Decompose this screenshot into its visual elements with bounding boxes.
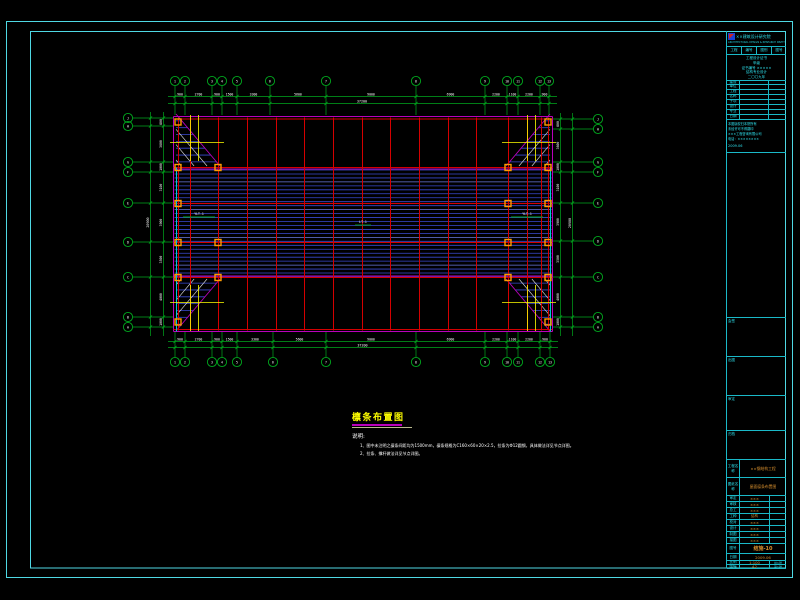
svg-text:5600: 5600 — [296, 337, 304, 341]
svg-text:900: 900 — [177, 337, 183, 341]
info-value — [740, 115, 769, 119]
svg-text:2200: 2200 — [525, 337, 533, 341]
svg-text:G: G — [127, 160, 129, 164]
personnel-extra — [769, 520, 786, 525]
svg-text:3: 3 — [211, 360, 213, 364]
section-label-1: 出图 — [728, 358, 735, 363]
size-row: 图幅A2第1张 — [727, 565, 786, 569]
svg-text:C: C — [127, 275, 129, 279]
svg-text:3500: 3500 — [556, 255, 560, 263]
section-divider — [727, 356, 786, 357]
svg-text:C: C — [597, 275, 599, 279]
personnel-value: ××× — [740, 532, 769, 537]
company-name: ××建筑设计研究院 — [736, 34, 771, 40]
svg-text:H: H — [597, 127, 599, 131]
info-label: 建设 — [727, 81, 740, 84]
info-label: 单位 — [727, 85, 740, 89]
titleblock-header: ××建筑设计研究院 — [728, 33, 771, 40]
svg-text:3100: 3100 — [556, 184, 560, 192]
date-row: 日期2009.06 — [727, 554, 786, 561]
company-logo-icon — [728, 33, 735, 40]
svg-text:G: G — [597, 160, 599, 164]
svg-text:6900: 6900 — [447, 92, 455, 96]
section-divider — [727, 430, 786, 431]
personnel-label: 审核 — [727, 502, 740, 507]
svg-text:20900: 20900 — [146, 217, 150, 227]
svg-text:10: 10 — [505, 79, 509, 83]
svg-text:900: 900 — [214, 337, 220, 341]
svg-text:5: 5 — [236, 79, 238, 83]
svg-text:YLT-1: YLT-1 — [194, 212, 204, 216]
info-label: 子项 — [727, 100, 740, 104]
drawing-number-row: 图号结施-10 — [727, 544, 786, 554]
svg-text:6900: 6900 — [447, 337, 455, 341]
svg-text:1000: 1000 — [556, 163, 560, 171]
info-extra — [769, 100, 786, 104]
personnel-label: 校对 — [727, 520, 740, 525]
svg-text:4000: 4000 — [556, 293, 560, 301]
personnel-extra — [769, 532, 786, 537]
svg-text:1000: 1000 — [556, 318, 560, 326]
row-value: 1:100 — [740, 561, 769, 564]
info-value — [740, 90, 769, 94]
svg-text:LT-1: LT-1 — [359, 220, 367, 224]
personnel-extra — [769, 526, 786, 531]
svg-text:2700: 2700 — [195, 337, 203, 341]
cad-sheet: { "colors": { "background": "#000000", "… — [0, 0, 800, 600]
row-value: 2009.06 — [740, 554, 786, 560]
svg-text:F: F — [127, 170, 129, 174]
info-label: 日期 — [727, 115, 740, 119]
svg-text:900: 900 — [214, 92, 220, 96]
column-grid-red — [174, 118, 553, 331]
section-divider — [727, 317, 786, 318]
svg-text:2200: 2200 — [525, 92, 533, 96]
row-value: 结施-10 — [740, 544, 786, 553]
info-row-7: 日期 — [727, 115, 786, 120]
svg-text:13: 13 — [547, 79, 551, 83]
svg-text:D: D — [127, 240, 129, 244]
titleblock-bottom-table: 工程名称××钢结构工程图纸名称屋面檩条布置图审定×××审核×××总工×××工种结… — [727, 459, 786, 568]
row-label: 图幅 — [727, 565, 740, 568]
svg-text:3100: 3100 — [159, 184, 163, 192]
personnel-label: 审定 — [727, 496, 740, 501]
svg-text:1000: 1000 — [159, 163, 163, 171]
title-block: ××建筑设计研究院 ARCHITECTURAL DESIGN & RESEARC… — [726, 31, 786, 568]
personnel-extra — [769, 502, 786, 507]
header-cell-1: 编号 — [742, 47, 757, 54]
svg-text:9: 9 — [484, 79, 486, 83]
project-info-table: 建设单位工程名称子项设计专业日期 — [727, 80, 786, 120]
svg-text:D: D — [597, 239, 599, 243]
svg-text:4: 4 — [221, 360, 223, 364]
row-value: ××钢结构工程 — [740, 460, 786, 477]
notes-heading: 说明: — [352, 432, 574, 440]
svg-text:2200: 2200 — [492, 337, 500, 341]
svg-text:J: J — [597, 117, 599, 121]
info-label: 设计 — [727, 105, 740, 109]
copyright-notice: 本图版权归本院所有未经许可不得翻印×××工程咨询有限公司电话：×××××××× — [728, 122, 786, 142]
info-extra — [769, 115, 786, 119]
svg-text:E: E — [597, 201, 599, 205]
info-value — [740, 110, 769, 114]
row-extra: 共1张 — [769, 561, 786, 564]
svg-text:3600: 3600 — [556, 142, 560, 150]
titleblock-date: 2009.06 — [728, 144, 742, 148]
company-name-en: ARCHITECTURAL DESIGN & RESEARCH INSTITUT… — [728, 41, 785, 44]
notice-line-3: 电话：×××××××× — [728, 137, 786, 142]
drawing-notes: 檩条布置图 说明: 1、图中未注明之檩条间距均为1500mm，檩条规格为C160… — [352, 410, 574, 457]
title-underline-thin — [352, 427, 412, 428]
svg-text:1100: 1100 — [509, 92, 517, 96]
svg-text:1500: 1500 — [226, 337, 234, 341]
header-cell-0: 工程 — [727, 47, 742, 54]
svg-text:H: H — [127, 124, 129, 128]
note-item-1: 1、图中未注明之檩条间距均为1500mm，檩条规格为C160×60×20×2.5… — [360, 443, 574, 449]
svg-text:B: B — [127, 315, 129, 319]
project-name-row: 工程名称××钢结构工程 — [727, 460, 786, 478]
info-value — [740, 85, 769, 89]
info-extra — [769, 110, 786, 114]
svg-text:1: 1 — [174, 360, 176, 364]
info-value — [740, 105, 769, 109]
row-label: 工程名称 — [727, 460, 740, 477]
svg-text:7: 7 — [325, 79, 327, 83]
header-cell-3: 图号 — [772, 47, 786, 54]
info-extra — [769, 85, 786, 89]
row-label: 图纸名称 — [727, 478, 740, 495]
svg-text:1: 1 — [174, 79, 176, 83]
svg-text:2: 2 — [184, 360, 186, 364]
info-label: 专业 — [727, 110, 740, 114]
personnel-value: ××× — [740, 502, 769, 507]
personnel-extra — [769, 508, 786, 513]
svg-text:2700: 2700 — [195, 92, 203, 96]
svg-text:6: 6 — [272, 360, 274, 364]
info-value — [740, 81, 769, 84]
info-value — [740, 100, 769, 104]
svg-text:20900: 20900 — [568, 218, 572, 228]
info-label: 工程 — [727, 90, 740, 94]
title-underline — [352, 424, 402, 426]
info-extra — [769, 81, 786, 84]
svg-text:5600: 5600 — [294, 92, 302, 96]
section-divider — [727, 395, 786, 396]
svg-text:6: 6 — [269, 79, 271, 83]
svg-text:9: 9 — [484, 360, 486, 364]
svg-text:A: A — [597, 325, 599, 329]
personnel-label: 工种 — [727, 514, 740, 519]
svg-text:5: 5 — [236, 360, 238, 364]
svg-text:13: 13 — [548, 360, 552, 364]
section-label-2: 审定 — [728, 397, 735, 402]
titleblock-header-cells: 工程编号图别图号 — [727, 46, 786, 55]
personnel-value: ××× — [740, 496, 769, 501]
svg-text:900: 900 — [177, 92, 183, 96]
svg-text:1000: 1000 — [159, 318, 163, 326]
sheet-name-row: 图纸名称屋面檩条布置图 — [727, 478, 786, 496]
svg-text:900: 900 — [542, 92, 548, 96]
personnel-label: 设计 — [727, 526, 740, 531]
row-label: 日期 — [727, 554, 740, 560]
structural-plan-canvas: YLT-1LT-1YLT-112345678910111213900270090… — [0, 0, 800, 600]
svg-text:800: 800 — [159, 119, 163, 125]
svg-text:37200: 37200 — [357, 99, 367, 103]
svg-text:2200: 2200 — [492, 92, 500, 96]
titleblock-divider — [727, 152, 786, 153]
row-label: 比例 — [727, 561, 740, 564]
personnel-value: ××× — [740, 526, 769, 531]
svg-text:11: 11 — [516, 79, 520, 83]
svg-text:11: 11 — [516, 360, 520, 364]
row-value: A2 — [740, 565, 769, 568]
svg-text:800: 800 — [556, 121, 560, 127]
svg-text:F: F — [597, 170, 599, 174]
personnel-value: ××× — [740, 538, 769, 543]
svg-text:4: 4 — [221, 79, 223, 83]
info-extra — [769, 95, 786, 99]
row-extra: 第1张 — [769, 565, 786, 568]
info-extra — [769, 90, 786, 94]
svg-text:3900: 3900 — [159, 219, 163, 227]
row-label: 图号 — [727, 544, 740, 553]
svg-text:900: 900 — [542, 337, 548, 341]
personnel-extra — [769, 538, 786, 543]
svg-text:12: 12 — [538, 79, 542, 83]
sheet-frame — [7, 22, 793, 578]
svg-text:E: E — [127, 201, 129, 205]
svg-text:9000: 9000 — [367, 337, 375, 341]
section-label-3: 归档 — [728, 432, 735, 437]
personnel-label: 制图 — [727, 532, 740, 537]
svg-text:3300: 3300 — [250, 92, 258, 96]
svg-text:12: 12 — [538, 360, 542, 364]
personnel-extra — [769, 514, 786, 519]
note-item-2: 2、拉条、撑杆做法详见节点详图。 — [360, 451, 574, 457]
svg-text:J: J — [127, 116, 129, 120]
svg-text:10: 10 — [505, 360, 509, 364]
personnel-value: ××× — [740, 508, 769, 513]
svg-text:4000: 4000 — [159, 293, 163, 301]
svg-text:B: B — [597, 315, 599, 319]
personnel-value: 结构 — [740, 514, 769, 519]
header-cell-2: 图别 — [757, 47, 772, 54]
svg-text:3500: 3500 — [159, 256, 163, 264]
personnel-extra — [769, 496, 786, 501]
svg-text:A: A — [127, 325, 129, 329]
personnel-label: 总工 — [727, 508, 740, 513]
personnel-value: ××× — [740, 520, 769, 525]
svg-text:8: 8 — [415, 360, 417, 364]
certificate-lines: 工程设计证书甲级证书编号 ×××××结构专业设计二〇〇九年 — [727, 56, 786, 80]
svg-text:3900: 3900 — [556, 218, 560, 226]
drawing-title: 檩条布置图 — [352, 410, 574, 423]
row-value: 屋面檩条布置图 — [740, 478, 786, 495]
svg-text:37200: 37200 — [357, 343, 367, 347]
svg-text:7: 7 — [325, 360, 327, 364]
svg-text:9000: 9000 — [367, 92, 375, 96]
svg-text:3300: 3300 — [251, 337, 259, 341]
svg-text:YLT-1: YLT-1 — [522, 212, 532, 216]
svg-text:2: 2 — [184, 79, 186, 83]
svg-text:1500: 1500 — [226, 92, 234, 96]
svg-text:1100: 1100 — [509, 337, 517, 341]
svg-text:3: 3 — [211, 79, 213, 83]
section-label-0: 会签 — [728, 319, 735, 324]
info-extra — [769, 105, 786, 109]
info-value — [740, 95, 769, 99]
svg-text:3600: 3600 — [159, 140, 163, 148]
svg-text:8: 8 — [415, 79, 417, 83]
personnel-label: 描图 — [727, 538, 740, 543]
info-label: 名称 — [727, 95, 740, 99]
